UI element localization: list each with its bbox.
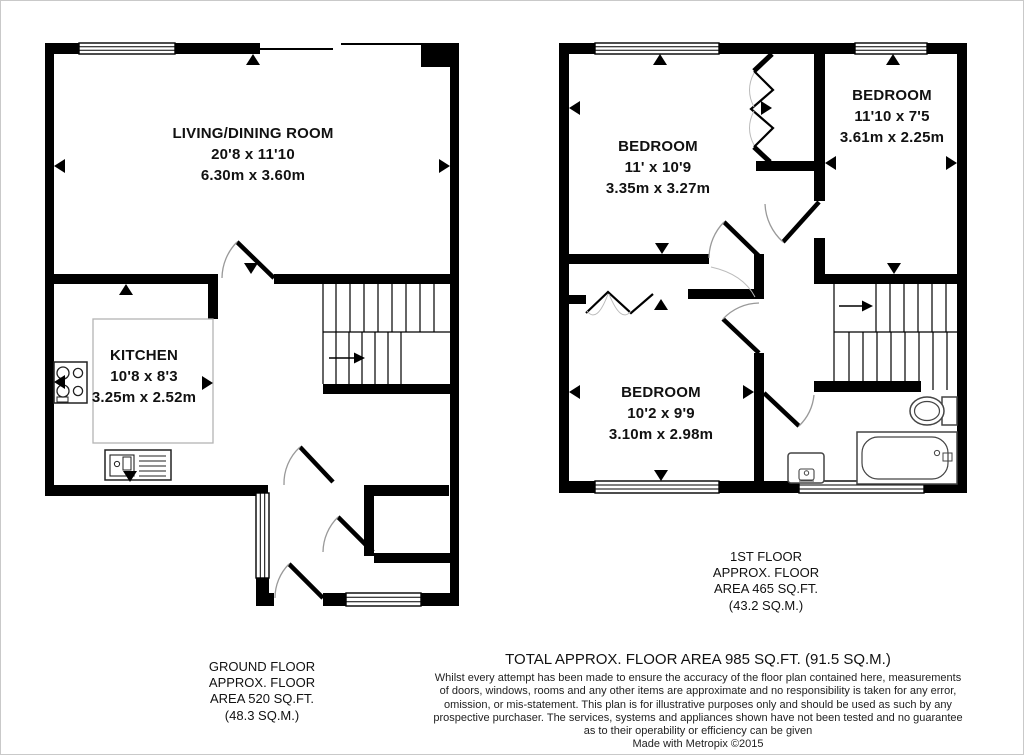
front-door-arc-icon — [275, 564, 323, 598]
disclaimer-line: prospective purchaser. The services, sys… — [433, 712, 962, 725]
credit-line: Made with Metropix ©2015 — [433, 738, 962, 751]
door-arc-icon — [284, 447, 333, 485]
measurement-marker-icons — [54, 54, 450, 482]
area-line: (48.3 SQ.M.) — [209, 708, 315, 724]
window-icon — [595, 481, 719, 493]
kitchen-sink-icon — [105, 450, 171, 480]
total-area-label: TOTAL APPROX. FLOOR AREA 985 SQ.FT. (91.… — [505, 652, 891, 668]
first-floor-area-label: 1ST FLOOR APPROX. FLOOR AREA 465 SQ.FT. … — [713, 549, 819, 614]
room-size-imperial: 10'8 x 8'3 — [92, 366, 196, 387]
open-boundary-lines — [260, 44, 421, 49]
basin-icon — [788, 453, 824, 483]
room-size-imperial: 10'2 x 9'9 — [609, 403, 713, 424]
area-line: APPROX. FLOOR — [713, 565, 819, 581]
area-line: AREA 465 SQ.FT. — [713, 581, 819, 597]
disclaimer-line: of doors, windows, rooms and any other i… — [433, 685, 962, 698]
window-icon — [79, 43, 175, 54]
window-icon — [855, 43, 927, 54]
disclaimer-line: Whilst every attempt has been made to en… — [433, 672, 962, 685]
room-size-imperial: 11'10 x 7'5 — [840, 106, 944, 127]
bedroom-2-label: BEDROOM 11'10 x 7'5 3.61m x 2.25m — [840, 85, 944, 148]
door-arc-icon — [222, 242, 274, 278]
disclaimer-text: Whilst every attempt has been made to en… — [433, 672, 962, 752]
kitchen-label: KITCHEN 10'8 x 8'3 3.25m x 2.52m — [92, 345, 196, 408]
room-name: BEDROOM — [609, 382, 713, 403]
room-size-imperial: 20'8 x 11'10 — [172, 144, 333, 165]
area-line: APPROX. FLOOR — [209, 675, 315, 691]
floorplan-image: LIVING/DINING ROOM 20'8 x 11'10 6.30m x … — [0, 0, 1024, 755]
bedroom-1-label: BEDROOM 11' x 10'9 3.35m x 3.27m — [606, 136, 710, 199]
window-icon — [595, 43, 719, 54]
room-size-metric: 3.25m x 2.52m — [92, 387, 196, 408]
door-arc-icon — [709, 222, 761, 297]
disclaimer-line: as to their operability or efficiency ca… — [433, 725, 962, 738]
room-size-metric: 6.30m x 3.60m — [172, 165, 333, 186]
bathroom-fixtures — [788, 397, 957, 484]
room-name: LIVING/DINING ROOM — [172, 123, 333, 144]
room-size-metric: 3.35m x 3.27m — [606, 178, 710, 199]
room-size-metric: 3.10m x 2.98m — [609, 424, 713, 445]
room-size-imperial: 11' x 10'9 — [606, 157, 710, 178]
living-dining-room-label: LIVING/DINING ROOM 20'8 x 11'10 6.30m x … — [172, 123, 333, 186]
bedroom-3-label: BEDROOM 10'2 x 9'9 3.10m x 2.98m — [609, 382, 713, 445]
wardrobe-zigzag-icon — [586, 292, 653, 315]
ground-floor-area-label: GROUND FLOOR APPROX. FLOOR AREA 520 SQ.F… — [209, 659, 315, 724]
toilet-icon — [910, 397, 957, 425]
area-line: AREA 520 SQ.FT. — [209, 691, 315, 707]
room-size-metric: 3.61m x 2.25m — [840, 127, 944, 148]
window-icon — [346, 593, 421, 606]
area-line: GROUND FLOOR — [209, 659, 315, 675]
area-line: 1ST FLOOR — [713, 549, 819, 565]
room-name: BEDROOM — [606, 136, 710, 157]
stairs-icon — [834, 284, 957, 390]
window-icon — [256, 493, 269, 578]
bathroom-door-arc-icon — [764, 393, 814, 426]
disclaimer-line: omission, or mis-statement. This plan is… — [433, 699, 962, 712]
stairs-direction-arrow-icon — [329, 353, 365, 364]
door-arc-icon — [765, 202, 819, 242]
stairs-icon — [323, 284, 450, 384]
room-name: KITCHEN — [92, 345, 196, 366]
bath-icon — [857, 432, 957, 484]
room-name: BEDROOM — [840, 85, 944, 106]
area-line: (43.2 SQ.M.) — [713, 598, 819, 614]
stairs-direction-arrow-icon — [839, 301, 873, 312]
door-arc-icon — [723, 303, 759, 353]
